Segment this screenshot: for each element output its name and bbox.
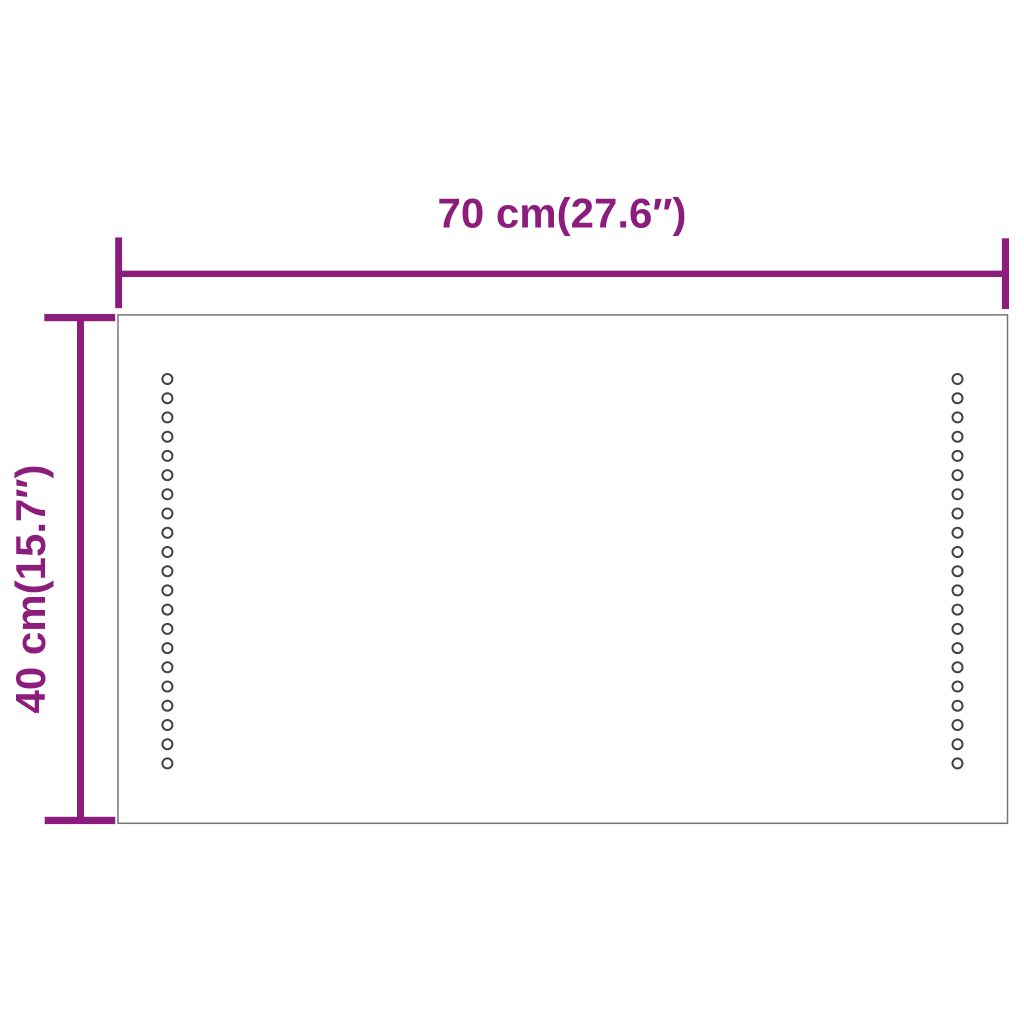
svg-text:70 cm(27.6″): 70 cm(27.6″) <box>438 190 687 237</box>
svg-text:40 cm(15.7″): 40 cm(15.7″) <box>7 465 54 714</box>
